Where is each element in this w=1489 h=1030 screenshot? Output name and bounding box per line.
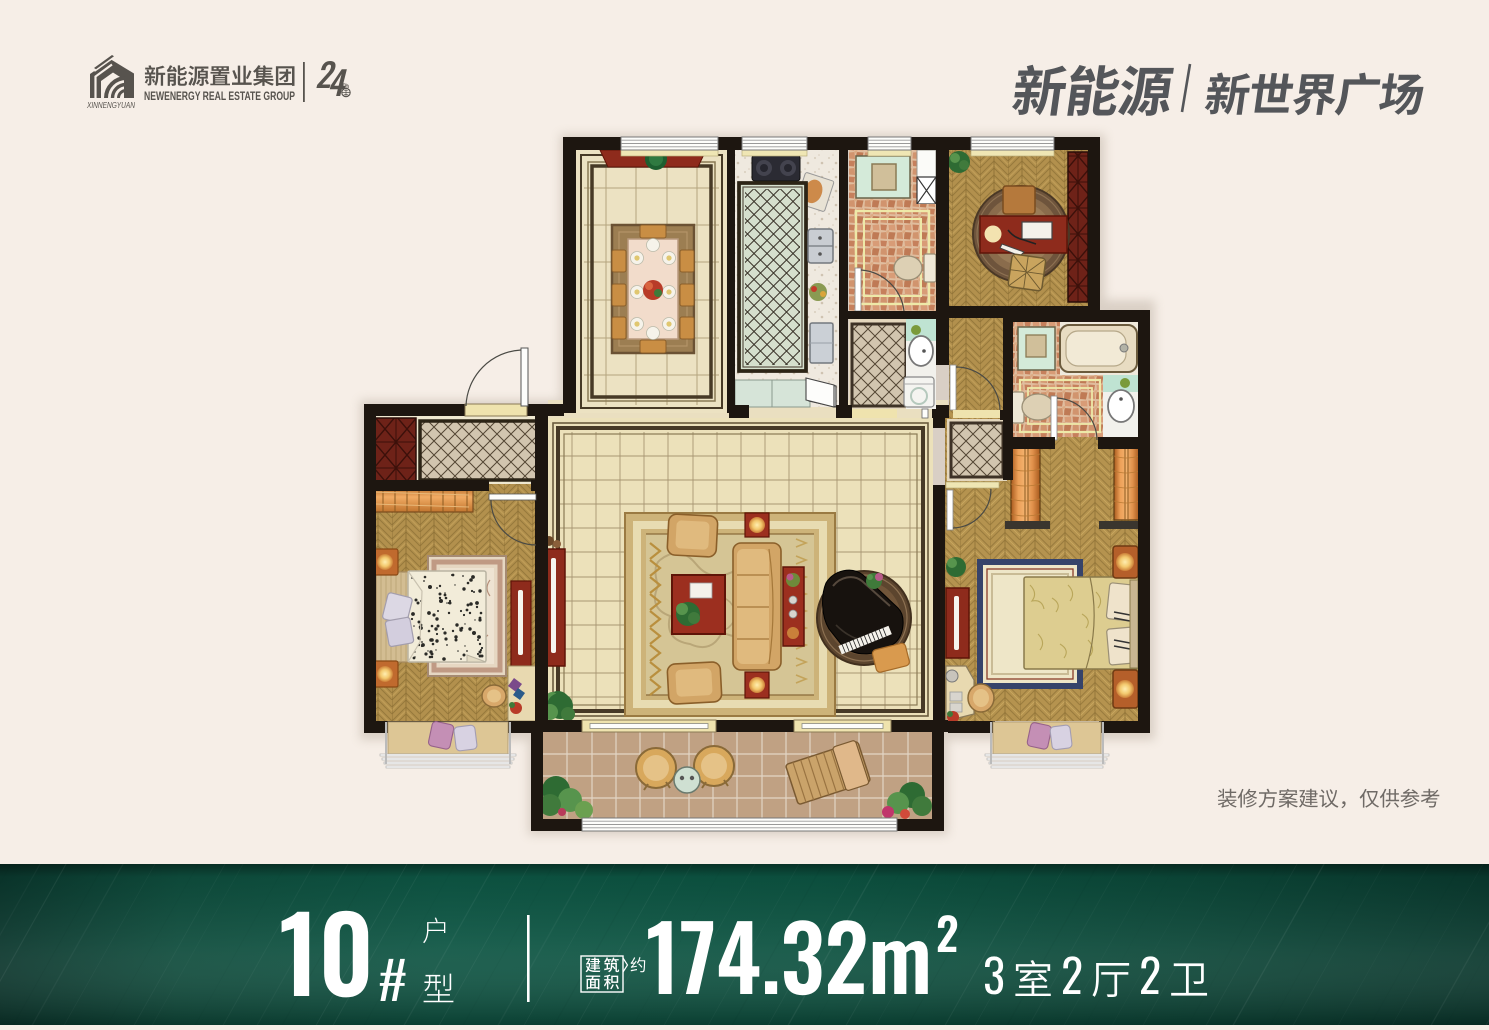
svg-text:NEWENERGY REAL ESTATE GROUP: NEWENERGY REAL ESTATE GROUP	[144, 90, 295, 103]
svg-text:XINNENGYUAN: XINNENGYUAN	[86, 101, 135, 110]
